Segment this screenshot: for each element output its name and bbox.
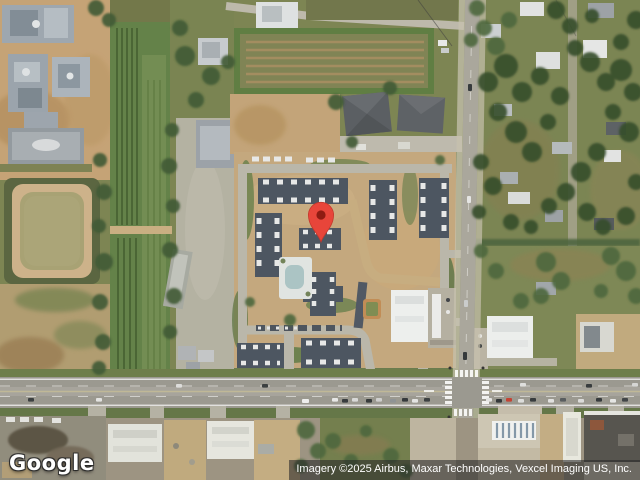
- location-marker-icon[interactable]: [301, 196, 341, 248]
- attribution-text: Imagery ©2025 Airbus, Maxar Technologies…: [296, 463, 632, 475]
- marker-dot: [316, 210, 325, 219]
- marker-body: [308, 202, 333, 242]
- attribution-bar: Imagery ©2025 Airbus, Maxar Technologies…: [289, 460, 640, 480]
- google-logo[interactable]: Google: [9, 451, 95, 475]
- satellite-map[interactable]: Google Imagery ©2025 Airbus, Maxar Techn…: [0, 0, 640, 480]
